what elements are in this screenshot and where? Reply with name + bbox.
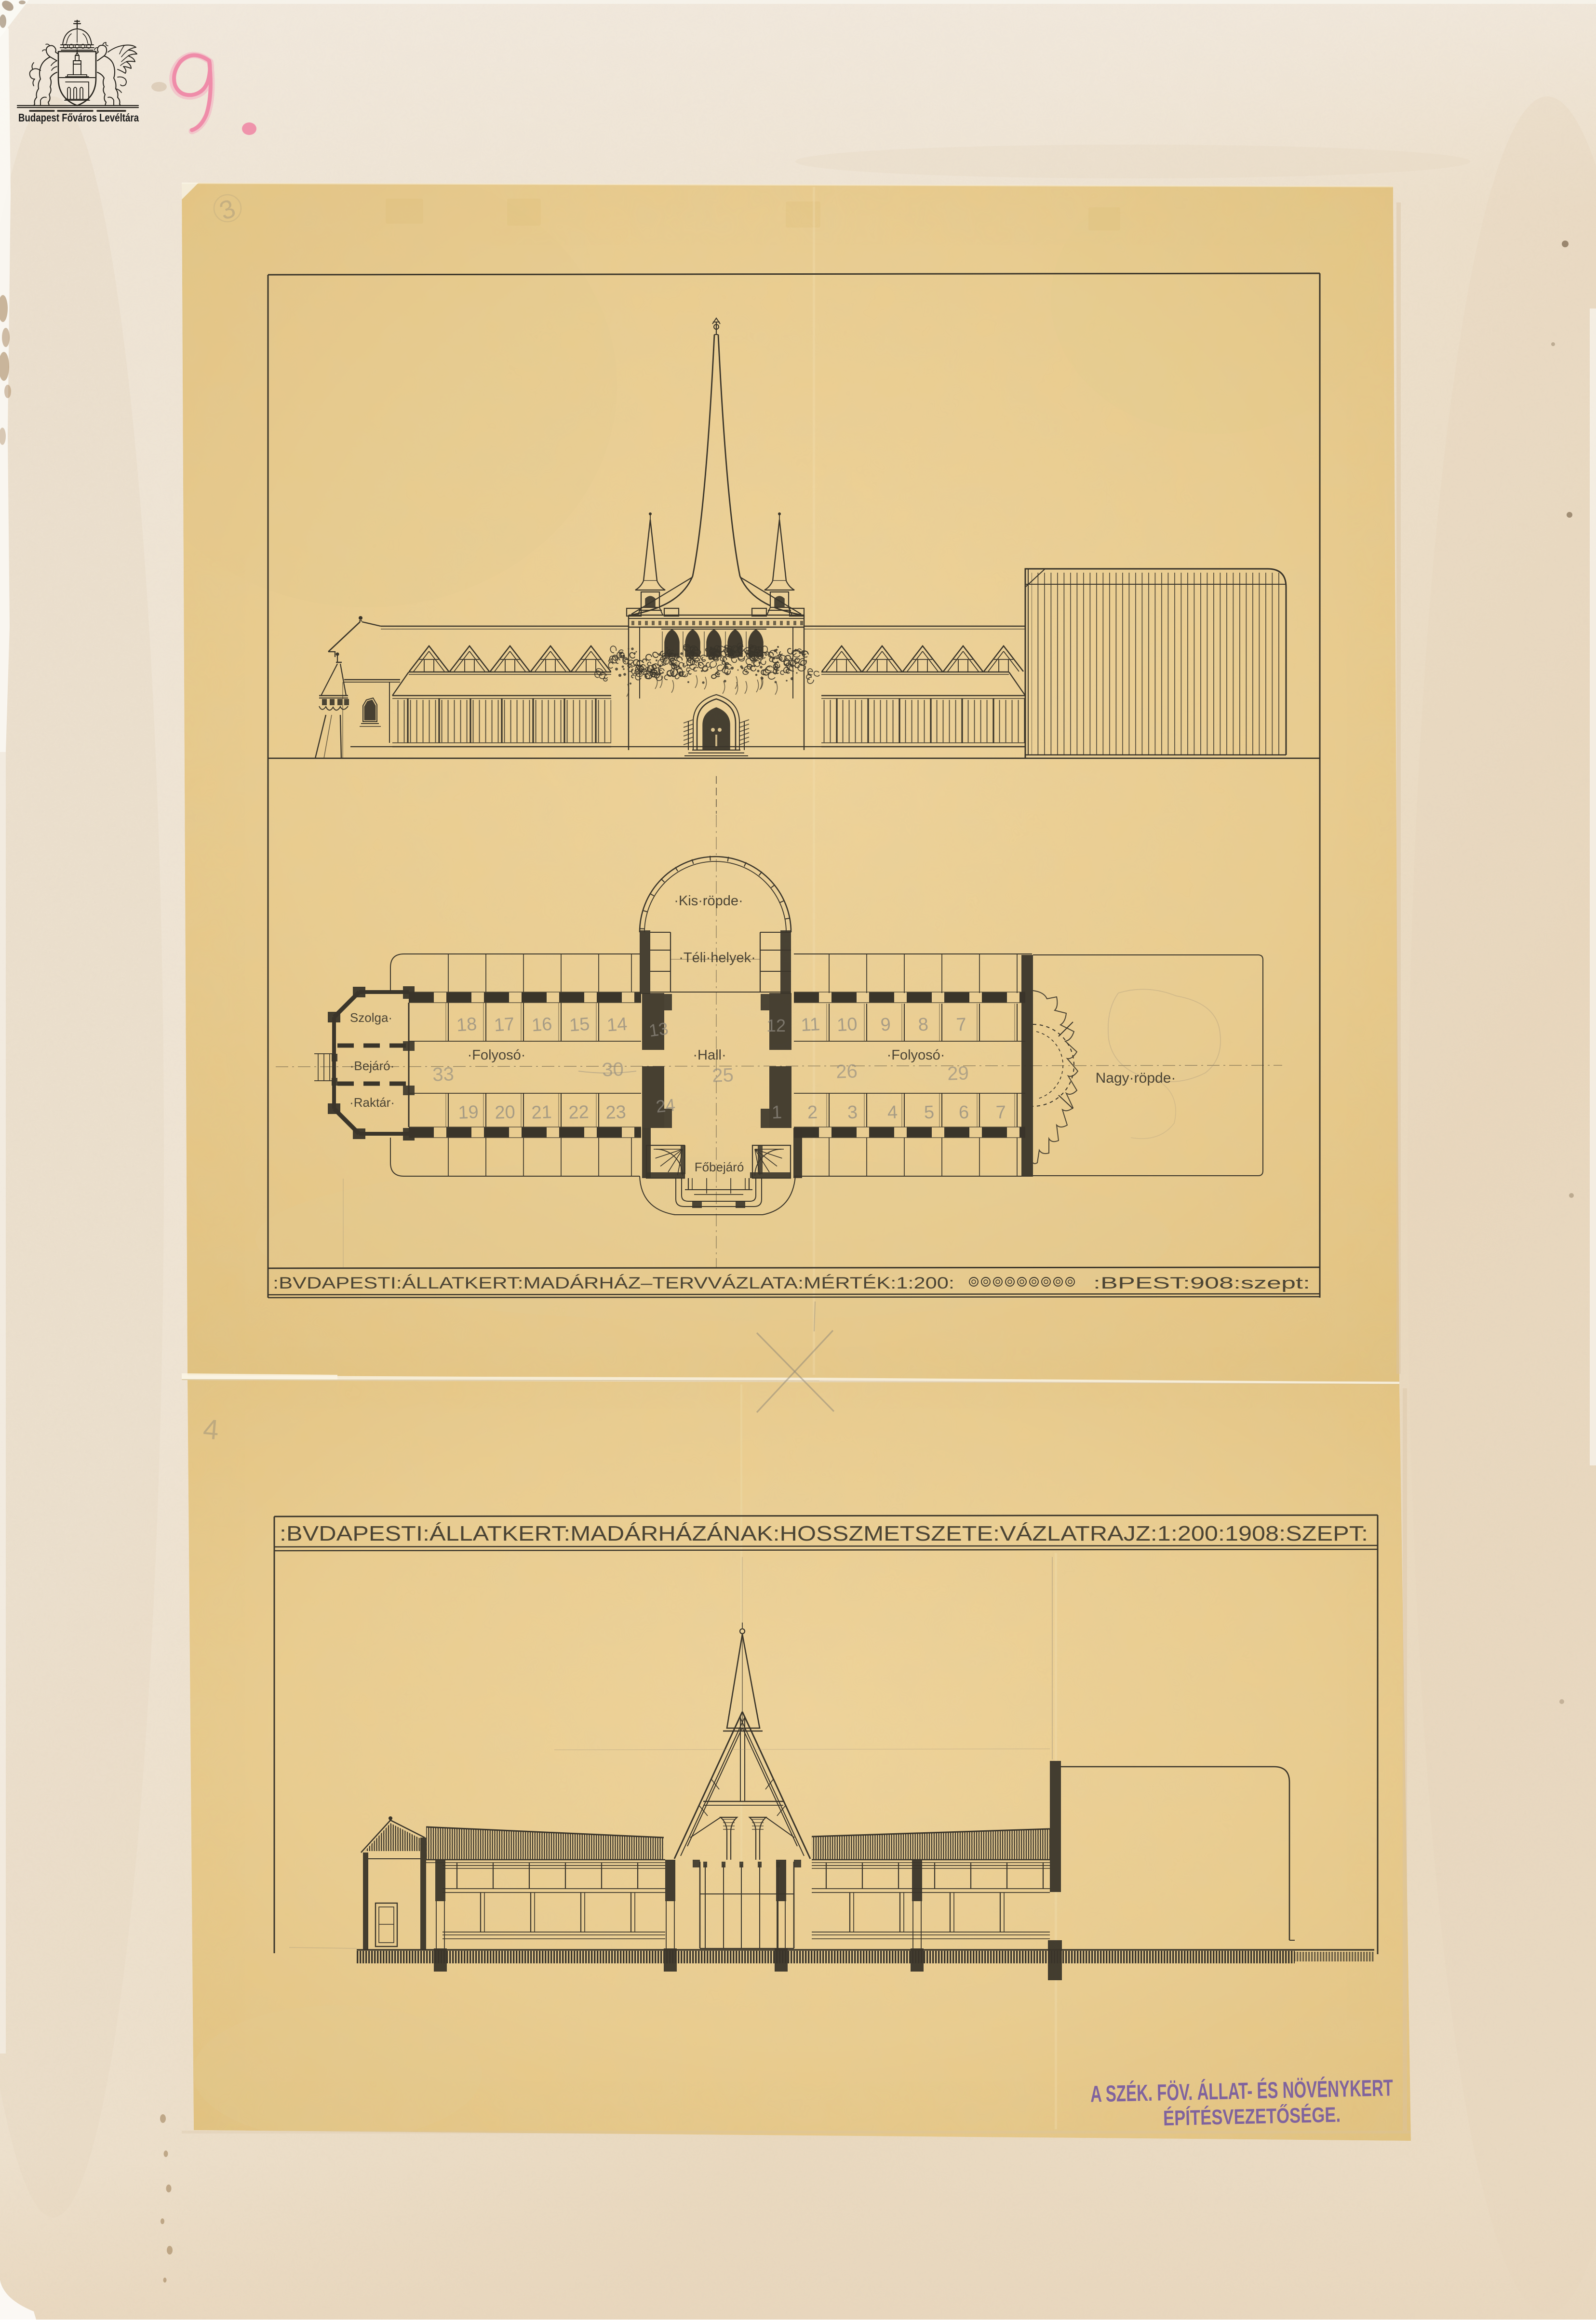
svg-text:7: 7 [995,1102,1006,1123]
svg-text:16: 16 [531,1014,553,1036]
svg-text:7: 7 [956,1014,967,1035]
svg-text:33: 33 [432,1063,455,1086]
svg-text:11: 11 [801,1014,821,1035]
svg-text:17: 17 [494,1014,515,1036]
svg-text:12: 12 [766,1016,786,1035]
svg-text:21: 21 [531,1102,552,1123]
svg-text:Nagy·röpde·: Nagy·röpde· [1096,1070,1176,1086]
svg-text:1: 1 [771,1102,782,1123]
svg-text:26: 26 [836,1060,858,1083]
svg-text:·Folyosó·: ·Folyosó· [887,1047,945,1063]
svg-text:ÉPÍTÉSVEZETŐSÉGE.: ÉPÍTÉSVEZETŐSÉGE. [1163,2103,1341,2131]
svg-text:4: 4 [887,1102,898,1123]
svg-text:20: 20 [495,1102,516,1123]
svg-text:·Folyosó·: ·Folyosó· [468,1047,526,1063]
svg-text::BVDAPESTI:ÁLLATKERT:MADÁRHÁZÁ: :BVDAPESTI:ÁLLATKERT:MADÁRHÁZÁNAK:HOSSZM… [280,1522,1368,1545]
svg-text:·Kis·röpde·: ·Kis·röpde· [674,893,743,909]
svg-text::BVDAPESTI:ÁLLATKERT:MADÁRHÁZ–: :BVDAPESTI:ÁLLATKERT:MADÁRHÁZ–TERVVÁZLAT… [273,1274,954,1292]
svg-text:25: 25 [712,1064,734,1087]
svg-text:5: 5 [924,1102,935,1123]
svg-text:18: 18 [456,1014,478,1036]
svg-text:Szolga·: Szolga· [350,1010,392,1025]
svg-text:22: 22 [568,1102,590,1123]
svg-text:Budapest Főváros Levéltára: Budapest Főváros Levéltára [18,111,139,124]
svg-text:8: 8 [918,1014,929,1035]
svg-text:13: 13 [648,1019,670,1041]
svg-text:9: 9 [880,1014,891,1035]
svg-text:23: 23 [605,1102,627,1123]
svg-text:·Téli·helyek·: ·Téli·helyek· [679,950,756,966]
svg-text:·Hall·: ·Hall· [693,1047,726,1063]
svg-text::BPEST:908:szept:: :BPEST:908:szept: [1093,1274,1310,1292]
svg-text:19: 19 [458,1102,479,1123]
svg-text:14: 14 [606,1014,628,1036]
svg-text:2: 2 [807,1102,818,1123]
svg-text:Főbejáró: Főbejáró [695,1160,744,1174]
svg-text:·Bejáró·: ·Bejáró· [350,1059,394,1073]
svg-text:4: 4 [202,1413,220,1446]
svg-text:·Raktár·: ·Raktár· [349,1095,395,1110]
svg-text:6: 6 [958,1102,969,1123]
svg-text:3: 3 [847,1102,858,1123]
svg-text:29: 29 [947,1062,969,1085]
svg-text:10: 10 [836,1014,858,1035]
svg-text:24: 24 [655,1095,676,1116]
svg-text:30: 30 [602,1059,624,1081]
svg-text:15: 15 [569,1014,590,1036]
